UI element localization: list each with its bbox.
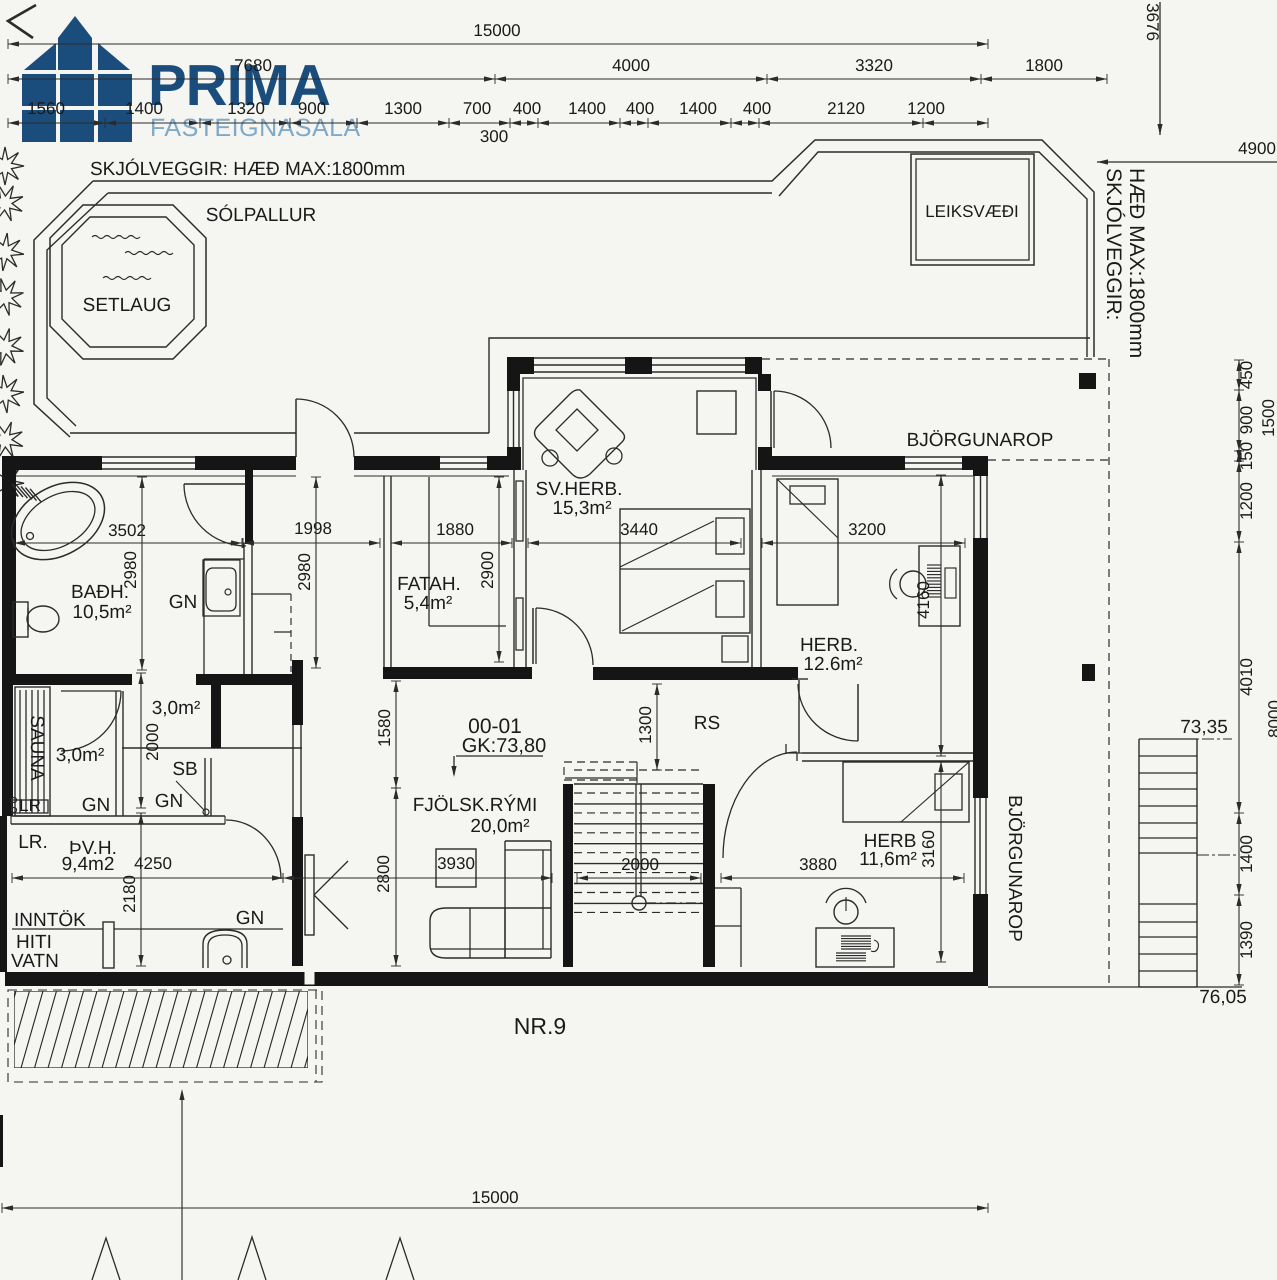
- svg-text:4900: 4900: [1238, 139, 1276, 158]
- svg-text:73,35: 73,35: [1180, 717, 1228, 738]
- svg-text:15000: 15000: [473, 21, 520, 40]
- svg-text:3930: 3930: [437, 854, 475, 873]
- svg-text:2900: 2900: [478, 551, 497, 589]
- svg-text:150: 150: [1237, 442, 1256, 470]
- svg-text:SKJÓLVEGGIR: HÆÐ MAX:1800mm: SKJÓLVEGGIR: HÆÐ MAX:1800mm: [90, 158, 405, 180]
- svg-text:2980: 2980: [295, 553, 314, 591]
- svg-text:LEIKSVÆÐI: LEIKSVÆÐI: [925, 202, 1019, 221]
- svg-text:400: 400: [743, 99, 771, 118]
- svg-text:SKJÓLVEGGIR:: SKJÓLVEGGIR:: [1102, 168, 1126, 321]
- svg-text:1400: 1400: [568, 99, 606, 118]
- svg-text:700: 700: [463, 99, 491, 118]
- svg-text:HITI: HITI: [16, 932, 52, 953]
- svg-text:1300: 1300: [384, 99, 422, 118]
- svg-text:8000: 8000: [1265, 700, 1277, 738]
- svg-text:3,0m²: 3,0m²: [56, 745, 105, 766]
- svg-text:4160: 4160: [914, 581, 933, 619]
- svg-text:HERB.: HERB.: [800, 635, 858, 656]
- svg-text:GN: GN: [169, 592, 198, 613]
- svg-text:2000: 2000: [143, 723, 162, 761]
- svg-text:15,3m²: 15,3m²: [552, 498, 611, 519]
- svg-text:1200: 1200: [907, 99, 945, 118]
- svg-text:1998: 1998: [294, 519, 332, 538]
- svg-text:3320: 3320: [855, 56, 893, 75]
- svg-text:7680: 7680: [234, 56, 272, 75]
- svg-text:900: 900: [1237, 406, 1256, 434]
- svg-text:4010: 4010: [1237, 658, 1256, 696]
- svg-text:1200: 1200: [1237, 482, 1256, 520]
- svg-text:10,5m²: 10,5m²: [72, 602, 131, 623]
- svg-text:5,4m²: 5,4m²: [404, 593, 453, 614]
- svg-text:3502: 3502: [108, 521, 146, 540]
- svg-text:3676: 3676: [1143, 3, 1162, 41]
- svg-text:9,4m2: 9,4m2: [62, 854, 115, 875]
- svg-text:GN: GN: [155, 791, 184, 812]
- svg-text:4250: 4250: [134, 854, 172, 873]
- svg-text:450: 450: [1237, 361, 1256, 389]
- svg-text:12.6m²: 12.6m²: [803, 654, 862, 675]
- svg-text:VATN: VATN: [11, 951, 59, 972]
- svg-text:1880: 1880: [436, 520, 474, 539]
- svg-text:SAUNA: SAUNA: [26, 715, 47, 781]
- svg-text:2120: 2120: [827, 99, 865, 118]
- svg-text:1320: 1320: [227, 99, 265, 118]
- svg-text:1560: 1560: [27, 99, 65, 118]
- svg-text:SV.HERB.: SV.HERB.: [536, 479, 623, 500]
- svg-text:2800: 2800: [374, 855, 393, 893]
- svg-text:3880: 3880: [799, 855, 837, 874]
- svg-text:3,0m²: 3,0m²: [152, 698, 201, 719]
- svg-text:3200: 3200: [848, 520, 886, 539]
- svg-text:SÓLPALLUR: SÓLPALLUR: [206, 204, 317, 226]
- svg-text:FJÖLSK.RÝMI: FJÖLSK.RÝMI: [413, 794, 538, 816]
- svg-text:BJÖRGUNAROP: BJÖRGUNAROP: [907, 430, 1054, 451]
- svg-text:FASTEIGNASALA: FASTEIGNASALA: [150, 114, 361, 142]
- svg-text:20,0m²: 20,0m²: [470, 816, 529, 837]
- svg-text:HÆÐ MAX:1800mm: HÆÐ MAX:1800mm: [1125, 168, 1148, 358]
- svg-text:SB: SB: [172, 759, 197, 780]
- svg-text:1300: 1300: [636, 706, 655, 744]
- svg-text:RS: RS: [694, 713, 720, 734]
- svg-text:300: 300: [480, 127, 508, 146]
- svg-text:1390: 1390: [1237, 921, 1256, 959]
- svg-text:1400: 1400: [679, 99, 717, 118]
- svg-text:1580: 1580: [375, 709, 394, 747]
- svg-text:INNTÖK: INNTÖK: [14, 910, 86, 931]
- svg-text:2000: 2000: [621, 855, 659, 874]
- svg-text:15000: 15000: [471, 1188, 518, 1207]
- svg-text:NR.9: NR.9: [514, 1013, 566, 1039]
- svg-text:3160: 3160: [919, 830, 938, 868]
- svg-text:SETLAUG: SETLAUG: [83, 295, 172, 316]
- svg-text:900: 900: [298, 99, 326, 118]
- svg-text:2980: 2980: [121, 551, 140, 589]
- svg-text:GN: GN: [236, 908, 265, 929]
- svg-text:11,6m²: 11,6m²: [859, 849, 917, 870]
- svg-text:1400: 1400: [1237, 835, 1256, 873]
- svg-text:2180: 2180: [120, 875, 139, 913]
- svg-text:BJÖRGUNAROP: BJÖRGUNAROP: [1004, 795, 1025, 942]
- svg-text:LR.: LR.: [18, 832, 48, 853]
- svg-text:FATAH.: FATAH.: [397, 574, 461, 595]
- svg-text:400: 400: [626, 99, 654, 118]
- svg-text:400: 400: [513, 99, 541, 118]
- svg-text:1400: 1400: [125, 99, 163, 118]
- svg-text:GN: GN: [82, 795, 111, 816]
- svg-text:GK:73,80: GK:73,80: [462, 735, 547, 757]
- svg-text:1800: 1800: [1025, 56, 1063, 75]
- svg-text:LR: LR: [19, 796, 41, 815]
- svg-text:76,05: 76,05: [1199, 987, 1247, 1008]
- svg-text:4000: 4000: [612, 56, 650, 75]
- svg-text:1500: 1500: [1259, 399, 1277, 437]
- svg-text:3440: 3440: [620, 520, 658, 539]
